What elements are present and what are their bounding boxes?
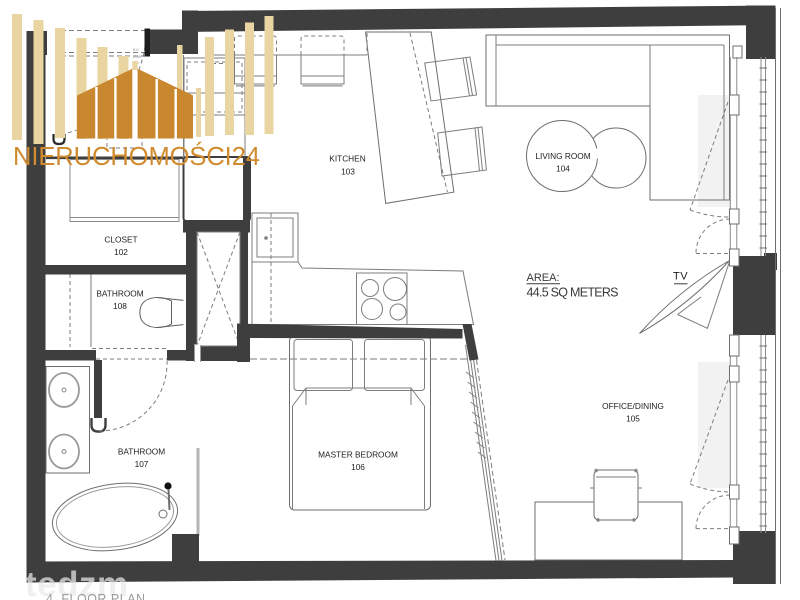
svg-text:BATHROOM: BATHROOM xyxy=(118,447,165,457)
svg-text:NIERUCHOMOŚCI24: NIERUCHOMOŚCI24 xyxy=(13,141,260,171)
svg-text:AREA:: AREA: xyxy=(527,272,560,284)
svg-text:4. FLOOR PLAN: 4. FLOOR PLAN xyxy=(46,592,146,600)
svg-text:MASTER BEDROOM: MASTER BEDROOM xyxy=(318,450,398,460)
svg-text:BATHROOM: BATHROOM xyxy=(96,289,143,299)
svg-text:KITCHEN: KITCHEN xyxy=(329,154,365,164)
svg-text:CLOSET: CLOSET xyxy=(104,235,137,245)
svg-text:103: 103 xyxy=(341,167,355,177)
svg-text:108: 108 xyxy=(113,301,127,311)
svg-text:LIVING ROOM: LIVING ROOM xyxy=(535,151,590,161)
svg-text:OFFICE/DINING: OFFICE/DINING xyxy=(602,401,664,411)
svg-text:102: 102 xyxy=(114,247,128,257)
svg-text:107: 107 xyxy=(135,459,149,469)
svg-text:44.5 SQ METERS: 44.5 SQ METERS xyxy=(527,286,619,300)
svg-text:TV: TV xyxy=(673,271,688,283)
svg-text:104: 104 xyxy=(556,164,570,174)
svg-text:8.0: 8.0 xyxy=(133,47,139,52)
svg-text:105: 105 xyxy=(626,414,640,424)
svg-text:2.28: 2.28 xyxy=(133,54,142,59)
svg-text:106: 106 xyxy=(351,462,365,472)
